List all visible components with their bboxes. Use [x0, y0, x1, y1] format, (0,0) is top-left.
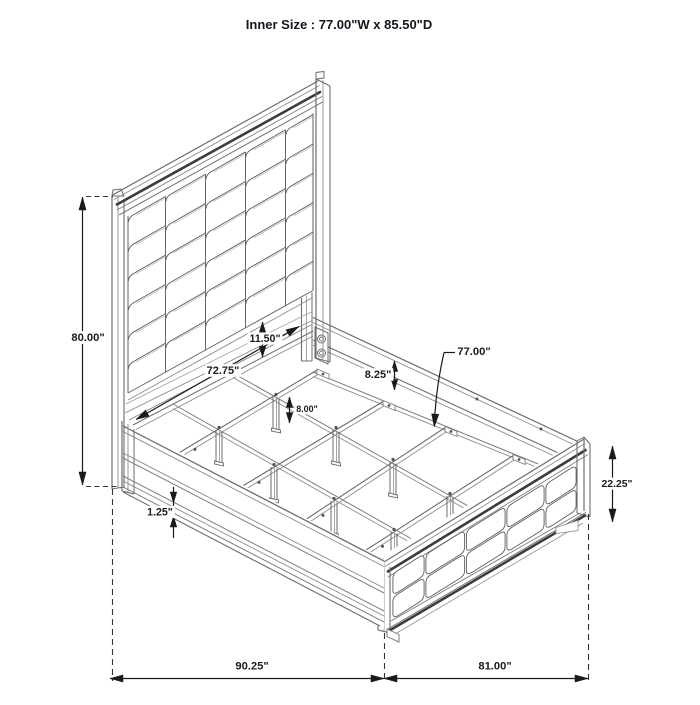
- svg-text:8.00": 8.00": [296, 404, 317, 414]
- svg-text:22.25": 22.25": [602, 479, 633, 490]
- svg-text:90.25": 90.25": [235, 660, 268, 672]
- svg-text:8.25": 8.25": [365, 369, 392, 381]
- svg-text:81.00": 81.00": [478, 660, 511, 672]
- svg-text:80.00": 80.00": [71, 332, 104, 344]
- svg-text:77.00": 77.00": [457, 346, 490, 358]
- svg-text:11.50": 11.50": [250, 333, 281, 345]
- svg-text:1.25": 1.25": [147, 506, 173, 518]
- svg-text:72.75": 72.75": [207, 365, 240, 377]
